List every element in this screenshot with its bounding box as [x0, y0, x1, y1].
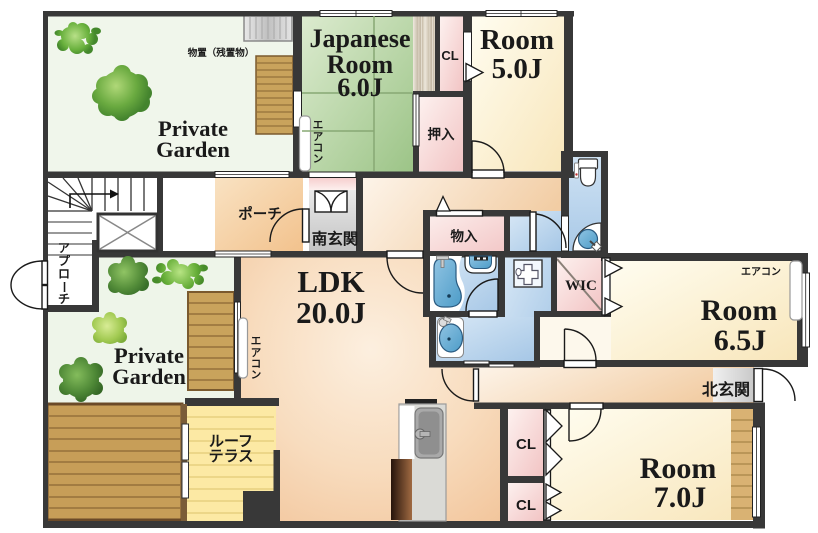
svg-text:7.0J: 7.0J	[654, 481, 707, 514]
svg-text:北玄関: 北玄関	[702, 380, 750, 399]
svg-text:ン: ン	[313, 153, 324, 165]
svg-text:押入: 押入	[428, 126, 455, 142]
svg-text:Room: Room	[701, 294, 778, 327]
svg-text:WIC: WIC	[565, 278, 597, 294]
svg-text:ポーチ: ポーチ	[238, 205, 282, 223]
svg-text:物置（残置物）: 物置（残置物）	[188, 47, 255, 59]
svg-text:20.0J: 20.0J	[296, 295, 366, 330]
svg-text:6.5J: 6.5J	[714, 324, 767, 357]
svg-text:ロ: ロ	[58, 267, 70, 281]
svg-text:プ: プ	[58, 253, 71, 268]
svg-text:5.0J: 5.0J	[492, 53, 543, 85]
svg-text:南玄関: 南玄関	[312, 229, 359, 248]
svg-text:LDK: LDK	[297, 264, 364, 299]
svg-text:Japanese: Japanese	[309, 24, 410, 53]
svg-text:CL: CL	[441, 48, 458, 63]
svg-text:Room: Room	[480, 24, 554, 56]
svg-text:ン: ン	[251, 369, 262, 381]
svg-text:チ: チ	[58, 292, 70, 306]
svg-text:ア: ア	[58, 241, 70, 255]
svg-text:Garden: Garden	[112, 364, 186, 389]
svg-text:物入: 物入	[451, 228, 478, 244]
svg-text:エ: エ	[251, 335, 262, 347]
svg-text:エ: エ	[313, 119, 324, 131]
svg-text:CL: CL	[516, 436, 536, 453]
svg-text:Garden: Garden	[156, 137, 230, 162]
svg-text:CL: CL	[516, 497, 536, 514]
svg-text:エアコン: エアコン	[741, 266, 781, 278]
svg-text:テラス: テラス	[209, 448, 254, 465]
svg-text:6.0J: 6.0J	[337, 73, 383, 102]
